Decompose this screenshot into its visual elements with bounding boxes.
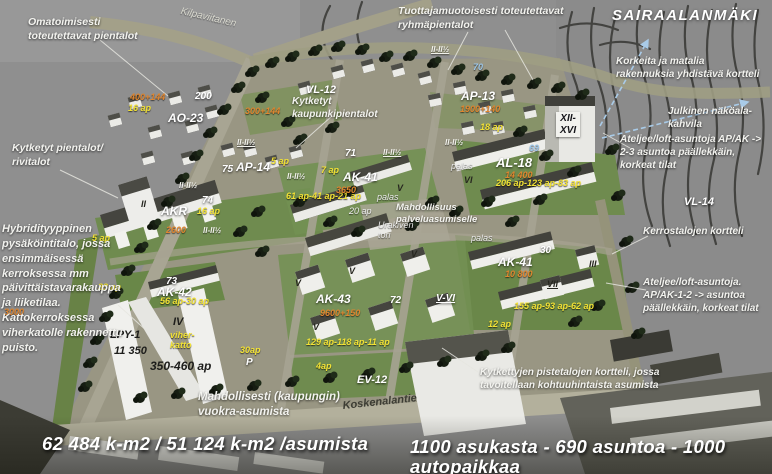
site-plan-render <box>0 0 772 474</box>
site-plan-screenshot: VL-12 AO-23 200 AP-14 75 AP-13 AL-18 AK-… <box>0 0 772 474</box>
